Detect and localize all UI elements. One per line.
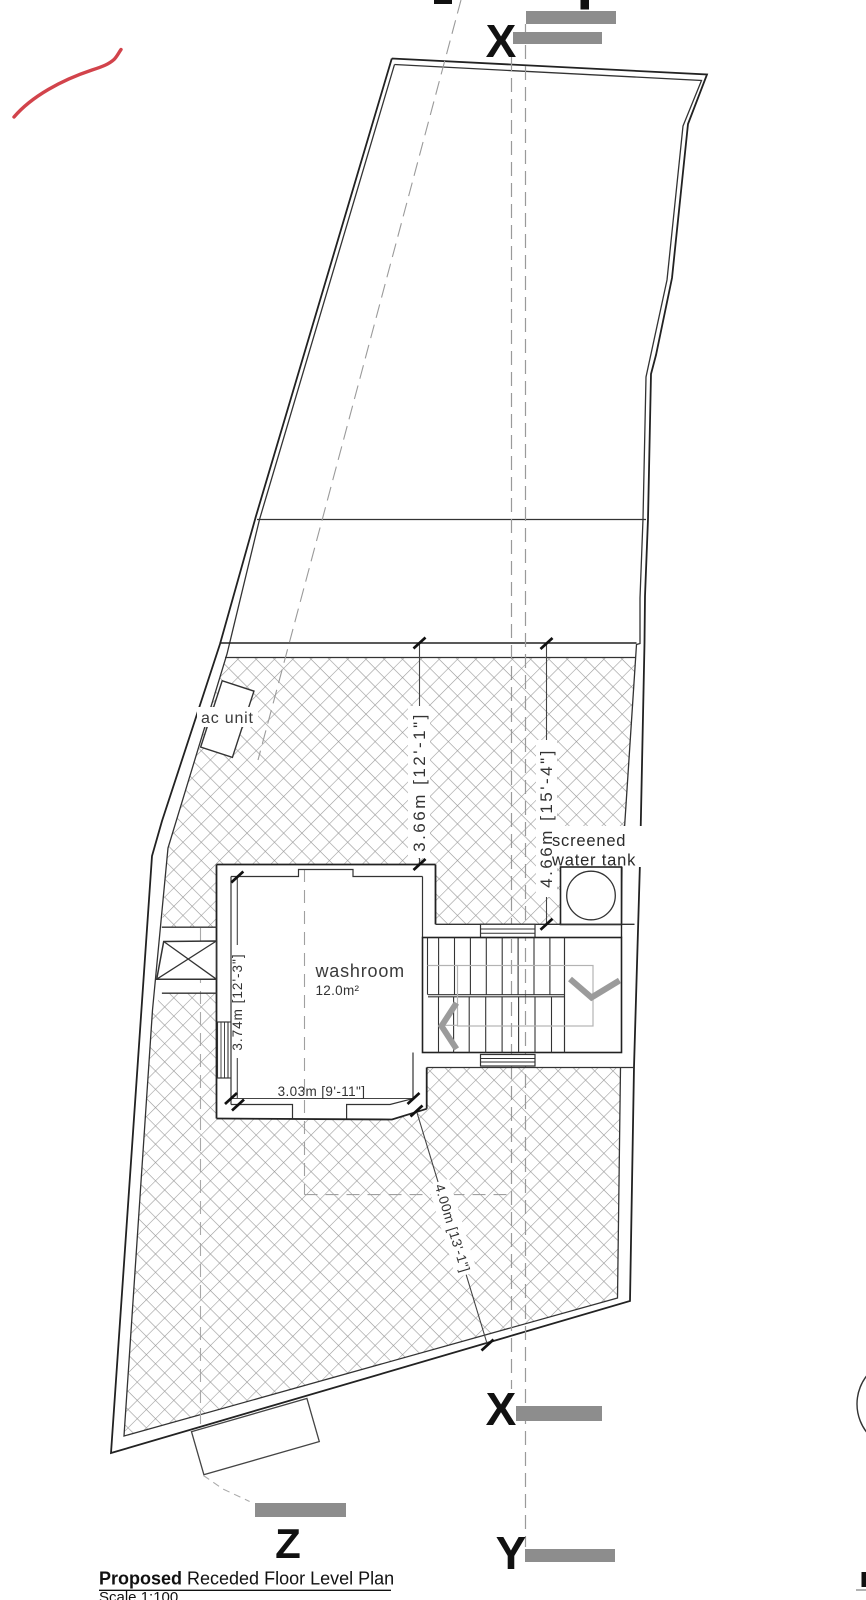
svg-text:4.66m [15'-4"]: 4.66m [15'-4"] (537, 748, 556, 888)
svg-text:water tank: water tank (551, 852, 636, 870)
svg-text:Proposed Receded Floor Level P: Proposed Receded Floor Level Plan (99, 1569, 394, 1589)
svg-text:Z: Z (275, 1520, 301, 1567)
svg-text:12.0m²: 12.0m² (316, 983, 360, 998)
svg-text:X: X (486, 15, 517, 67)
svg-text:3.66m [12'-1"]: 3.66m [12'-1"] (410, 712, 429, 852)
svg-text:3.74m [12'-3"]: 3.74m [12'-3"] (230, 953, 245, 1050)
svg-text:3.03m [9'-11"]: 3.03m [9'-11"] (278, 1084, 366, 1099)
svg-text:screened: screened (552, 832, 626, 850)
svg-text:washroom: washroom (315, 961, 405, 981)
svg-text:Y: Y (496, 1527, 527, 1579)
svg-text:ac unit: ac unit (201, 710, 254, 727)
svg-text:Scale 1:100: Scale 1:100 (99, 1589, 178, 1600)
svg-text:X: X (486, 1383, 517, 1435)
